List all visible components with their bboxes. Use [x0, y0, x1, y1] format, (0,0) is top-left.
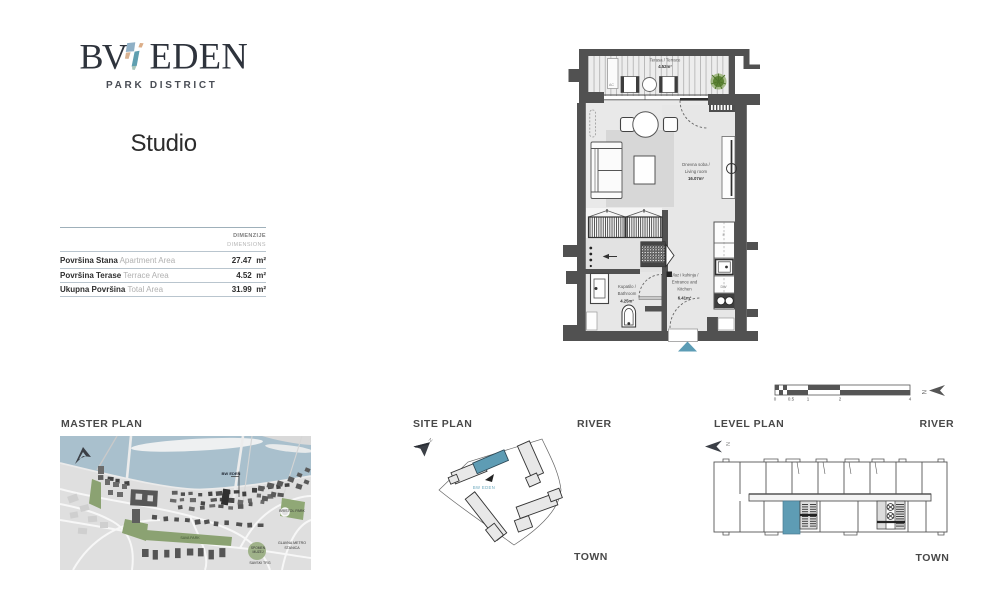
svg-text:N: N: [920, 390, 926, 394]
svg-text:Kupatilo /: Kupatilo /: [618, 284, 637, 289]
svg-text:SAVSKI TRG: SAVSKI TRG: [249, 561, 270, 565]
svg-text:N: N: [724, 442, 730, 446]
svg-text:Ulaz i kuhinja /: Ulaz i kuhinja /: [671, 273, 700, 278]
svg-text:2: 2: [839, 397, 842, 402]
svg-text:AC: AC: [609, 83, 614, 87]
svg-text:BW EDEN: BW EDEN: [222, 471, 241, 476]
svg-text:GLAVNA METRO: GLAVNA METRO: [278, 541, 306, 545]
svg-text:BRISTOL PARK: BRISTOL PARK: [279, 509, 305, 513]
svg-text:Living room: Living room: [685, 169, 708, 174]
svg-text:16.07m²: 16.07m²: [688, 176, 705, 181]
svg-text:4: 4: [909, 397, 912, 402]
svg-text:Dnevna soba /: Dnevna soba /: [682, 162, 711, 167]
svg-text:4.52m²: 4.52m²: [658, 64, 672, 69]
svg-text:1: 1: [807, 397, 810, 402]
svg-text:4.25m²: 4.25m²: [620, 298, 634, 303]
svg-text:BV: BV: [80, 37, 128, 77]
svg-text:6.41m²: 6.41m²: [678, 296, 692, 301]
svg-text:BW EDEN: BW EDEN: [473, 485, 495, 490]
svg-text:DW: DW: [721, 285, 728, 289]
svg-text:Terasa / Terrace: Terasa / Terrace: [650, 58, 681, 63]
svg-text:MUZEJ: MUZEJ: [253, 550, 264, 554]
svg-text:SAVA PARK: SAVA PARK: [180, 536, 200, 540]
svg-text:0.5: 0.5: [788, 397, 795, 402]
svg-text:STANICA: STANICA: [284, 546, 300, 550]
svg-text:EDEN: EDEN: [150, 36, 249, 77]
svg-text:Kitchen: Kitchen: [677, 287, 692, 292]
svg-text:Bathroom: Bathroom: [618, 291, 637, 296]
svg-text:0: 0: [774, 397, 777, 402]
svg-text:Entrance and: Entrance and: [672, 280, 698, 285]
